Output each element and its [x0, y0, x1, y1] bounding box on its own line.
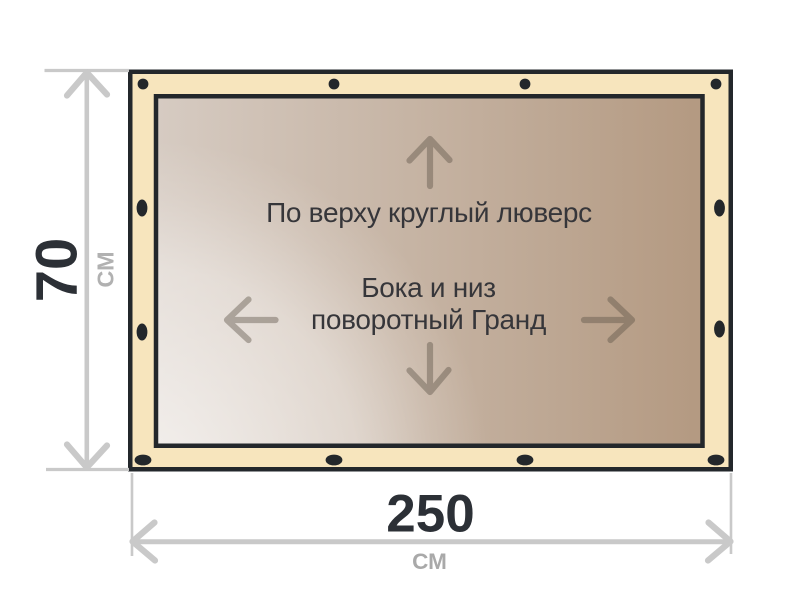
svg-text:Бока и низ: Бока и низ — [361, 272, 496, 303]
svg-text:70: 70 — [25, 238, 90, 303]
svg-text:СМ: СМ — [93, 251, 119, 287]
svg-text:СМ: СМ — [412, 549, 447, 574]
svg-text:поворотный Гранд: поворотный Гранд — [311, 304, 546, 335]
svg-text:250: 250 — [386, 485, 474, 544]
svg-text:По верху круглый люверс: По верху круглый люверс — [266, 197, 592, 228]
